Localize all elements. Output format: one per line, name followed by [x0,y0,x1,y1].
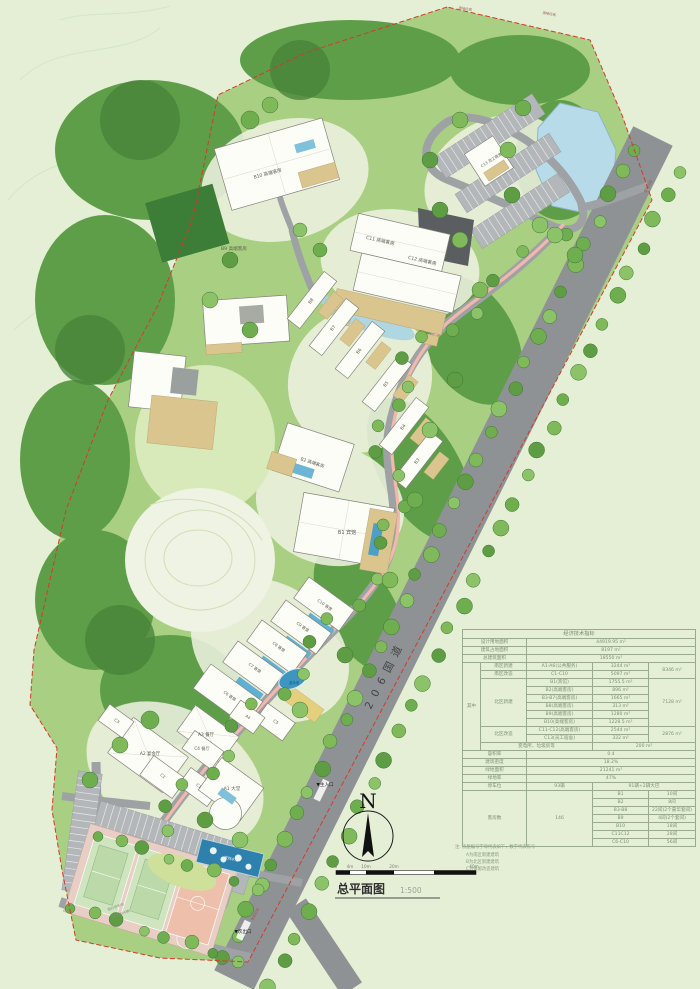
tree [135,841,149,855]
tree [303,635,316,648]
table-cell: 北区新建 [481,679,527,727]
table-cell: B1 [593,791,649,799]
table-cell: 56间 [649,839,696,847]
tree [532,217,548,233]
tree [262,97,278,113]
tree [242,322,258,338]
tree [176,779,188,791]
tree [567,247,583,263]
tree [472,282,488,298]
tree [222,252,238,268]
table-cell: C13(员工宿舍) [527,735,593,743]
tree [446,324,459,337]
tree [376,752,392,768]
tree [416,331,428,343]
tree [393,470,405,482]
tree [485,426,497,438]
tree [277,831,293,847]
tree [486,274,499,287]
table-cell: 8346 m² [649,663,696,679]
scale-bar: 0 4m 10m 20m 40m [335,864,479,875]
tree [89,907,101,919]
tree [371,573,383,585]
north-needle [362,813,374,857]
tree [238,901,254,917]
tree [616,164,630,178]
tree [583,344,597,358]
table-cell: 8197 m² [527,647,696,655]
tree [202,292,218,308]
tree [382,572,398,588]
tree [375,641,387,653]
tree [141,711,159,729]
tree [315,761,331,777]
tree [409,569,421,581]
tree [112,737,128,753]
tree [260,979,276,989]
tree [505,498,519,512]
table-cell: 3244 m² [593,663,649,671]
table-cell: 332 m² [593,735,649,743]
tree [372,420,384,432]
table-cell: 146 [527,791,593,847]
tree [529,442,545,458]
table-cell: B1(宾馆) [527,679,593,687]
tree [619,266,633,280]
tree [207,767,220,780]
tree [596,318,608,330]
table-cell: B10(高端客房) [527,719,593,727]
tree [600,186,616,202]
scale-tick: 10m [361,864,370,869]
tree [457,474,473,490]
tree [638,243,650,255]
table-cell: 1280 m² [593,711,649,719]
tree [315,876,329,890]
tree [383,619,399,635]
tree [292,702,308,718]
tree [448,497,460,509]
tree [301,787,313,799]
table-cell: 4间(2个套间) [649,815,696,823]
table-cell: 其中 [463,663,481,751]
tree [515,100,531,116]
tree [93,832,103,842]
tree [208,948,218,958]
table-cell: B10 [593,823,649,831]
table-cell: A1-A6(公共服务) [527,663,593,671]
economic-indicators-table: 经济技术指标设计用地面积44919.95 m²建筑占地面积8197 m²总建筑面… [462,629,695,847]
tree [362,664,376,678]
tree [471,307,483,319]
table-cell: 896 m² [593,687,649,695]
table-cell: 南区新建 [481,663,527,671]
tree [229,876,239,886]
tree [341,714,353,726]
tree [298,668,310,680]
tree [531,328,547,344]
main-entrance-marker: ▼主入口 [316,781,334,788]
table-title: 经济技术指标 [463,630,696,639]
tree [321,613,333,625]
tree [293,223,307,237]
tree [245,698,257,710]
tree [290,806,304,820]
notes-line: B为北区新建建筑 [466,858,500,865]
table-cell: B8(高端客房) [527,703,593,711]
tree [441,622,453,634]
tree [369,777,381,789]
tree [594,216,606,228]
tree [518,356,530,368]
tree [207,863,221,877]
table-cell: 建筑占地面积 [463,647,527,655]
table-cell: 客房数 [463,791,527,847]
tree [392,399,405,412]
table-cell: 18.2% [527,759,696,767]
legend-notes: 注: 房屋编号字母代表如下，数字代表栋号 A为南区新建建筑 B为北区新建建筑 C… [455,843,535,872]
boundary-label: 用地红线 [542,10,557,17]
notes-line: C为保留改造建筑 [466,865,500,872]
drawing-title: 总平面图 1:500 [335,881,440,898]
tree [159,800,172,813]
table-cell: 28间 [649,831,696,839]
tree [241,111,259,129]
tree [517,246,529,258]
tree [197,812,213,828]
tree [466,573,480,587]
tree [82,772,98,788]
tree [225,720,238,733]
tree [181,860,193,872]
table-cell: C11C12 [593,831,649,839]
tree [323,734,337,748]
label-a3: A3 餐厅 [198,731,215,738]
label-c4: C4 餐厅 [194,745,209,752]
table-cell: 22间(2个豪华套间) [649,807,696,815]
tree [185,935,199,949]
tree [392,724,406,738]
tree [432,524,446,538]
table-cell: 10间 [649,791,696,799]
table-cell: C1-C10 [527,671,593,679]
table-cell: 停车位 [463,783,527,791]
page-scale: 1:500 [400,886,422,895]
tree [116,835,128,847]
table-cell: 91辆+2辆大巴 [593,783,696,791]
tree [493,520,509,536]
table-cell: 1665 m² [593,695,649,703]
table-cell: 1228.5 m² [593,719,649,727]
tree [644,211,660,227]
table-cell: 1755.5 m² [593,679,649,687]
tree [432,202,448,218]
tree [452,232,468,248]
tree [491,401,507,417]
table-cell: 变电所、垃圾房等 [481,743,593,751]
scale-tick: 20m [389,864,398,869]
table-cell: 设计用地面积 [463,639,527,647]
table-cell: 绿地面积 [463,767,527,775]
tree [158,932,170,944]
tree [288,933,300,945]
table-cell: 93辆 [527,783,593,791]
tree [457,598,473,614]
tree [353,599,366,612]
table-cell: B2 [593,799,649,807]
tree [543,310,557,324]
table-cell: 0.4 [527,751,696,759]
table-cell: 2876 m² [649,727,696,743]
tree [422,152,438,168]
tree [278,954,292,968]
tree [557,394,569,406]
tree [337,647,353,663]
tree [469,453,483,467]
label-a1: A1 大堂 [224,785,241,792]
tree [452,112,468,128]
tree [547,227,563,243]
table-cell: 313 m² [593,703,649,711]
table-cell: 18550 m² [527,655,696,663]
north-label: N [359,789,377,813]
notes-line: A为南区新建建筑 [466,851,500,858]
tree [400,594,414,608]
tree [571,364,587,380]
tree [347,690,363,706]
tree [374,536,387,549]
tree [162,825,174,837]
table-cell: B2(高端客房) [527,687,593,695]
label-b1: B1 宾馆 [338,529,356,536]
tree [423,547,439,563]
tree [414,676,430,692]
site-plan-page: B10 高端客房B9 高端客房C11 高端客房C12 高端客房C13 员工宿舍B… [0,0,700,989]
tree [395,352,408,365]
tree [402,381,414,393]
scale-tick: 4m [347,864,354,869]
tree [369,445,382,458]
table-cell: 容积率 [463,751,527,759]
tree [447,372,463,388]
table-cell: 18间 [649,823,696,831]
label-swimming-pool: 游泳池 [289,680,300,685]
tree [223,750,235,762]
tree [301,904,317,920]
page-title: 总平面图 [337,881,385,896]
table-cell: 建筑密度 [463,759,527,767]
tree [509,382,523,396]
tree [252,884,264,896]
tree [164,854,174,864]
tree [405,699,417,711]
tree [407,492,423,508]
table-cell: 44919.95 m² [527,639,696,647]
tree [674,167,686,179]
tree [432,649,446,663]
tree [483,545,495,557]
table-cell: 5097 m² [593,671,649,679]
secondary-exit-marker: ▼次出口 [234,928,252,935]
table-cell: B9 [593,815,649,823]
table-cell: 47% [527,775,696,783]
table-cell: 7128 m² [649,679,696,727]
table-cell: 绿地率 [463,775,527,783]
tree [522,469,534,481]
tree [610,287,626,303]
north-arrow: N [343,789,393,861]
table-cell: 2544 m² [593,727,649,735]
tree [422,422,438,438]
table-cell: C11-C12(高端客房) [527,727,593,735]
tree [504,187,520,203]
table-cell: 南区改造 [481,671,527,679]
table-cell: B3-B7(高端客房) [527,695,593,703]
label-b9: B9 高端客房 [221,245,247,252]
table-cell: 北区改造 [481,727,527,743]
table-cell: C6-C10 [593,839,649,847]
table-cell: B9(高端客房) [527,711,593,719]
table-cell: 总建筑面积 [463,655,527,663]
label-a2: A2 宴会厅 [140,750,161,757]
table-cell: 21241 m² [527,767,696,775]
tree [278,688,291,701]
tree [313,243,327,257]
tree [661,188,675,202]
scale-tick: 0 [335,864,338,869]
table-cell: B3-B8 [593,807,649,815]
tree [555,286,567,298]
tree [232,832,248,848]
table-cell: 8间 [649,799,696,807]
tree [265,859,277,871]
tree [139,926,149,936]
table-cell: 200 m² [593,743,696,751]
tree [547,421,561,435]
tree [377,519,389,531]
